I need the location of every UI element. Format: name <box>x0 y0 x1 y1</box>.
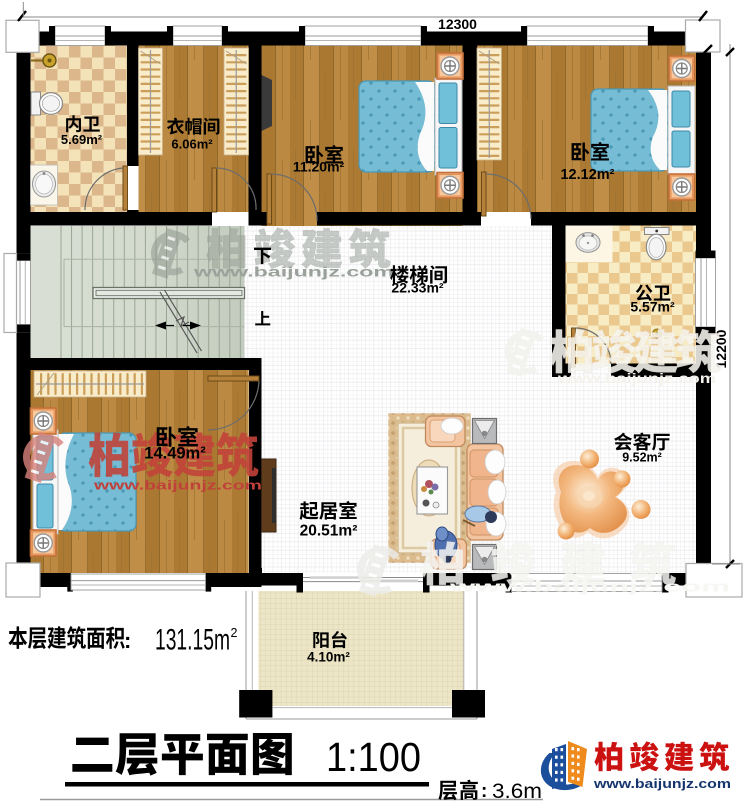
svg-text:5.57m²: 5.57m² <box>630 299 675 315</box>
svg-text:22.33m²: 22.33m² <box>391 280 443 296</box>
svg-text:www.baijunjz.com: www.baijunjz.com <box>557 371 716 386</box>
svg-text:www.baijunjz.com: www.baijunjz.com <box>593 776 731 791</box>
svg-text:12.12m²: 12.12m² <box>560 167 614 183</box>
svg-text:6.06m²: 6.06m² <box>171 137 213 152</box>
svg-text:12300: 12300 <box>438 16 477 32</box>
svg-text:www.baijunjz.com: www.baijunjz.com <box>448 579 730 596</box>
svg-text:1:100: 1:100 <box>326 734 421 780</box>
svg-text:131.15m: 131.15m <box>155 624 230 657</box>
svg-text:20.51m²: 20.51m² <box>300 523 358 540</box>
svg-text:www.baijunjz.com: www.baijunjz.com <box>192 264 394 280</box>
svg-text::: : <box>124 628 131 653</box>
svg-text:www.baijunjz.com: www.baijunjz.com <box>93 478 262 493</box>
svg-text:3.6m: 3.6m <box>492 780 542 803</box>
svg-text:14.49m²: 14.49m² <box>144 445 206 463</box>
svg-text:5.69m²: 5.69m² <box>61 132 103 147</box>
svg-text:2: 2 <box>231 626 238 640</box>
svg-text:4.10m²: 4.10m² <box>307 650 350 665</box>
svg-text:11.20m²: 11.20m² <box>293 159 345 175</box>
svg-text:9.52m²: 9.52m² <box>622 451 662 465</box>
svg-text::: : <box>481 781 487 802</box>
